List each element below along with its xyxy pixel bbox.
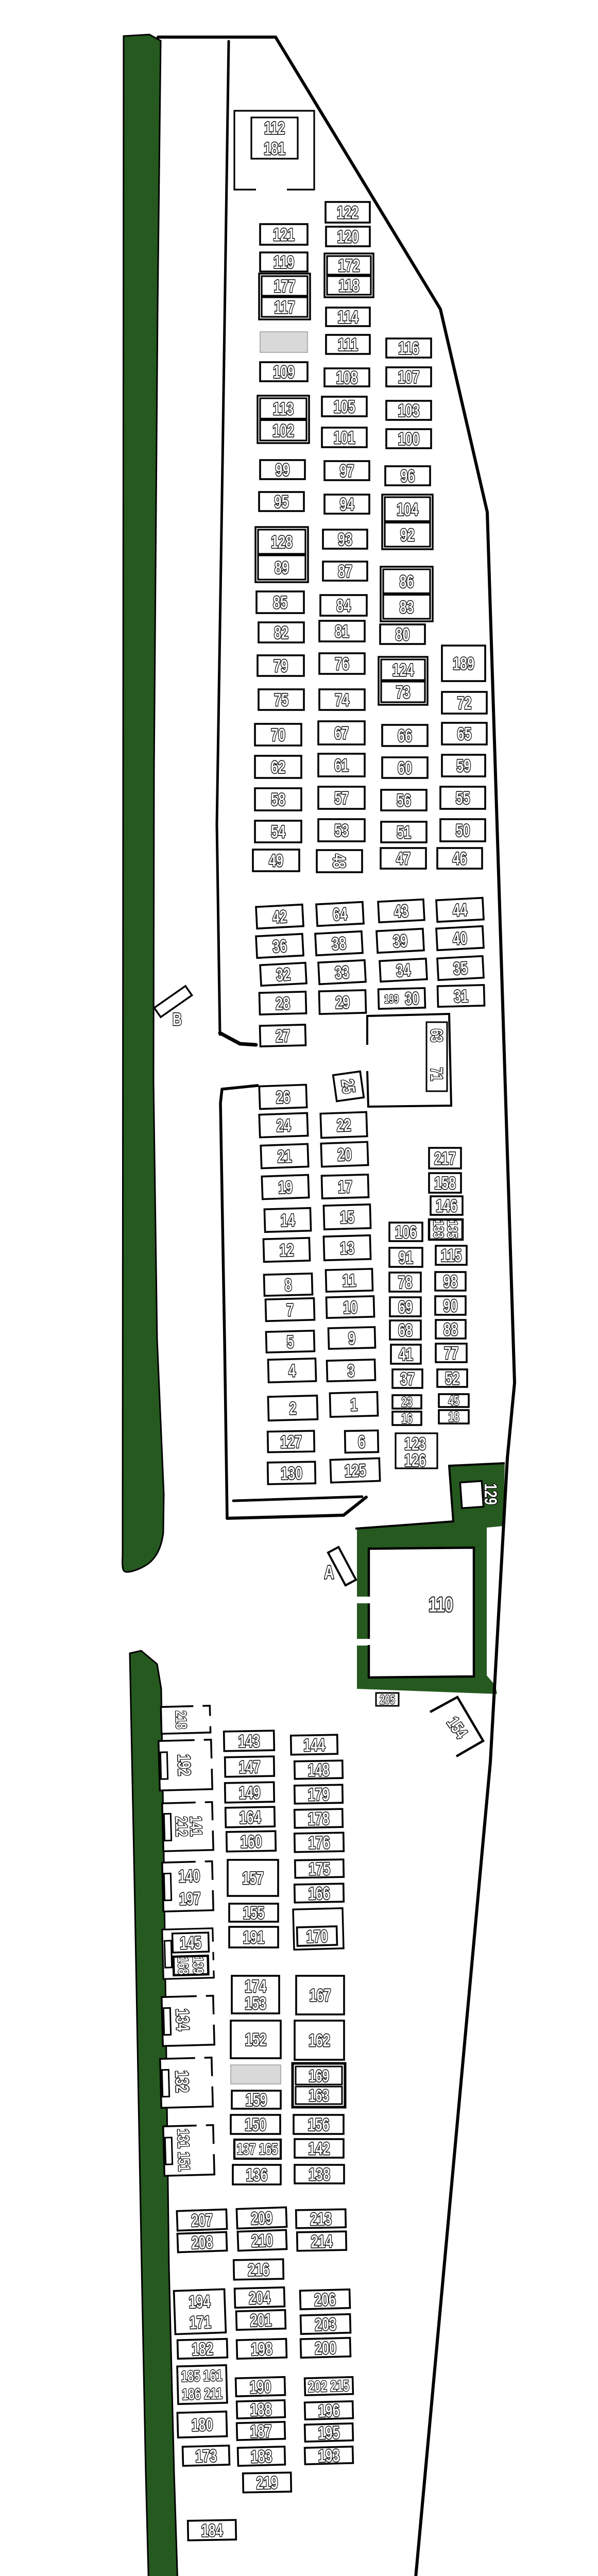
svg-text:110: 110 xyxy=(429,1594,453,1616)
svg-text:147: 147 xyxy=(238,1757,261,1777)
svg-text:13: 13 xyxy=(340,1239,355,1258)
svg-text:15: 15 xyxy=(340,1208,355,1227)
svg-text:26: 26 xyxy=(276,1088,291,1107)
svg-text:50: 50 xyxy=(456,821,470,841)
svg-text:89: 89 xyxy=(275,558,289,578)
svg-text:102: 102 xyxy=(272,421,294,441)
svg-text:38: 38 xyxy=(331,934,347,954)
svg-text:143: 143 xyxy=(238,1732,260,1751)
svg-text:212: 212 xyxy=(172,1816,191,1837)
svg-text:19: 19 xyxy=(278,1178,293,1197)
svg-text:186 211: 186 211 xyxy=(182,2384,223,2403)
svg-text:160: 160 xyxy=(240,1832,262,1852)
svg-text:66: 66 xyxy=(398,726,412,746)
svg-text:56: 56 xyxy=(397,791,411,811)
svg-text:95: 95 xyxy=(275,493,289,512)
svg-text:85: 85 xyxy=(273,594,287,613)
svg-text:134: 134 xyxy=(172,2008,193,2031)
svg-text:157: 157 xyxy=(242,1869,264,1889)
svg-text:30: 30 xyxy=(405,989,420,1009)
svg-text:115: 115 xyxy=(441,1246,462,1266)
svg-text:181: 181 xyxy=(264,140,285,159)
svg-text:128: 128 xyxy=(271,533,293,552)
svg-text:32: 32 xyxy=(276,965,291,985)
svg-text:74: 74 xyxy=(335,691,349,710)
svg-text:52: 52 xyxy=(445,1369,459,1389)
svg-text:2: 2 xyxy=(289,1399,297,1418)
svg-text:152: 152 xyxy=(245,2030,267,2050)
svg-text:45: 45 xyxy=(448,1393,459,1409)
svg-text:99: 99 xyxy=(276,461,290,480)
svg-text:25: 25 xyxy=(337,1078,358,1095)
svg-text:81: 81 xyxy=(335,622,349,642)
svg-text:105: 105 xyxy=(334,398,355,417)
svg-text:34: 34 xyxy=(396,961,411,981)
svg-text:171: 171 xyxy=(189,2313,211,2333)
svg-text:83: 83 xyxy=(400,598,414,617)
svg-text:192: 192 xyxy=(174,1754,194,1776)
svg-text:190: 190 xyxy=(249,2377,271,2397)
svg-text:159: 159 xyxy=(246,2091,267,2110)
svg-text:16: 16 xyxy=(401,1411,412,1426)
svg-text:144: 144 xyxy=(303,1736,326,1755)
svg-text:94: 94 xyxy=(340,495,354,515)
svg-text:24: 24 xyxy=(276,1116,292,1136)
svg-text:189: 189 xyxy=(453,654,474,674)
svg-text:97: 97 xyxy=(340,462,354,481)
svg-text:133: 133 xyxy=(430,1221,446,1239)
svg-text:84: 84 xyxy=(336,597,351,616)
svg-text:33: 33 xyxy=(334,963,350,983)
svg-text:40: 40 xyxy=(452,929,468,949)
svg-text:28: 28 xyxy=(276,994,291,1013)
svg-text:36: 36 xyxy=(272,937,287,957)
svg-text:205: 205 xyxy=(380,1693,395,1707)
svg-text:122: 122 xyxy=(337,204,358,223)
svg-text:109: 109 xyxy=(273,363,295,382)
svg-text:176: 176 xyxy=(308,1833,330,1853)
svg-text:156: 156 xyxy=(308,2115,330,2135)
svg-text:22: 22 xyxy=(336,1116,351,1136)
svg-text:86: 86 xyxy=(400,572,414,592)
svg-text:191: 191 xyxy=(243,1928,265,1948)
svg-text:100: 100 xyxy=(398,430,420,449)
svg-text:175: 175 xyxy=(309,1859,331,1879)
svg-text:29: 29 xyxy=(335,993,350,1012)
svg-text:59: 59 xyxy=(456,757,471,776)
svg-text:185 161: 185 161 xyxy=(181,2366,223,2385)
svg-text:194: 194 xyxy=(189,2292,211,2312)
svg-text:201: 201 xyxy=(250,2311,272,2331)
svg-text:96: 96 xyxy=(401,467,415,486)
svg-text:21: 21 xyxy=(277,1147,292,1166)
svg-text:195: 195 xyxy=(318,2423,340,2443)
svg-text:41: 41 xyxy=(399,1345,413,1365)
svg-text:67: 67 xyxy=(334,724,349,743)
svg-text:146: 146 xyxy=(436,1197,457,1216)
svg-text:112: 112 xyxy=(264,119,285,139)
svg-text:218: 218 xyxy=(172,1710,189,1730)
svg-text:170: 170 xyxy=(306,1927,328,1947)
svg-text:78: 78 xyxy=(398,1273,413,1293)
svg-text:80: 80 xyxy=(396,625,410,645)
svg-text:136: 136 xyxy=(246,2166,268,2185)
svg-text:43: 43 xyxy=(394,902,409,922)
svg-text:180: 180 xyxy=(191,2415,213,2435)
svg-text:164: 164 xyxy=(239,1808,261,1827)
svg-text:168: 168 xyxy=(175,1957,191,1975)
svg-text:31: 31 xyxy=(454,987,469,1006)
svg-text:162: 162 xyxy=(309,2031,330,2051)
svg-text:193: 193 xyxy=(318,2446,340,2466)
svg-text:121: 121 xyxy=(273,226,295,245)
svg-text:1: 1 xyxy=(350,1395,358,1415)
svg-text:93: 93 xyxy=(338,530,352,550)
svg-text:54: 54 xyxy=(271,823,285,842)
svg-text:196: 196 xyxy=(318,2401,340,2421)
svg-text:210: 210 xyxy=(251,2231,273,2251)
svg-text:92: 92 xyxy=(400,526,415,545)
svg-text:27: 27 xyxy=(276,1026,291,1046)
svg-text:68: 68 xyxy=(398,1321,413,1341)
svg-text:174: 174 xyxy=(245,1977,266,1997)
svg-text:187: 187 xyxy=(250,2421,272,2442)
svg-text:3: 3 xyxy=(347,1361,355,1381)
svg-text:131 151: 131 151 xyxy=(174,2128,193,2172)
svg-text:47: 47 xyxy=(396,850,411,869)
svg-text:169: 169 xyxy=(309,2067,329,2085)
svg-text:58: 58 xyxy=(271,790,285,810)
svg-text:107: 107 xyxy=(398,368,420,387)
svg-text:9: 9 xyxy=(348,1329,356,1348)
svg-text:90: 90 xyxy=(443,1297,458,1316)
svg-text:173: 173 xyxy=(195,2446,217,2466)
svg-text:219: 219 xyxy=(256,2473,278,2493)
svg-text:64: 64 xyxy=(332,905,348,925)
svg-text:113: 113 xyxy=(273,399,294,419)
svg-text:17: 17 xyxy=(338,1177,353,1197)
svg-text:7: 7 xyxy=(286,1300,294,1320)
svg-text:48: 48 xyxy=(329,854,349,869)
svg-text:139: 139 xyxy=(190,1956,206,1974)
svg-text:11: 11 xyxy=(342,1271,356,1291)
svg-text:10: 10 xyxy=(343,1298,358,1317)
svg-text:203: 203 xyxy=(315,2315,337,2335)
svg-text:129: 129 xyxy=(481,1483,500,1505)
svg-text:202 215: 202 215 xyxy=(307,2377,349,2395)
svg-text:183: 183 xyxy=(250,2447,272,2467)
svg-text:138: 138 xyxy=(309,2165,330,2185)
svg-text:23: 23 xyxy=(401,1394,412,1410)
svg-text:179: 179 xyxy=(307,1785,330,1805)
svg-text:200: 200 xyxy=(315,2338,337,2359)
svg-text:206: 206 xyxy=(314,2290,336,2310)
svg-text:111: 111 xyxy=(338,335,358,355)
svg-text:53: 53 xyxy=(334,821,349,841)
svg-text:73: 73 xyxy=(396,683,411,703)
svg-text:79: 79 xyxy=(274,657,288,676)
svg-text:217: 217 xyxy=(434,1149,456,1169)
svg-text:76: 76 xyxy=(335,655,349,674)
svg-text:18: 18 xyxy=(448,1409,459,1425)
svg-text:77: 77 xyxy=(444,1344,458,1364)
svg-text:75: 75 xyxy=(274,691,288,710)
svg-text:153: 153 xyxy=(245,1994,266,2014)
svg-text:150: 150 xyxy=(245,2115,266,2135)
svg-text:104: 104 xyxy=(397,500,418,520)
svg-text:158: 158 xyxy=(434,1174,456,1194)
svg-text:61: 61 xyxy=(334,756,349,776)
svg-text:132: 132 xyxy=(172,2070,193,2093)
svg-text:204: 204 xyxy=(249,2288,271,2308)
svg-text:117: 117 xyxy=(274,298,295,318)
svg-text:126: 126 xyxy=(404,1451,426,1471)
svg-text:166: 166 xyxy=(308,1884,330,1904)
svg-text:44: 44 xyxy=(452,901,468,921)
svg-text:167: 167 xyxy=(310,1986,331,2006)
svg-text:71: 71 xyxy=(428,1067,446,1081)
svg-text:B: B xyxy=(173,1010,182,1030)
svg-text:137: 137 xyxy=(236,2140,255,2158)
svg-text:208: 208 xyxy=(191,2233,213,2253)
svg-text:130: 130 xyxy=(281,1464,303,1483)
svg-text:51: 51 xyxy=(397,823,411,843)
svg-text:62: 62 xyxy=(271,758,285,777)
svg-text:108: 108 xyxy=(336,368,358,388)
svg-text:12: 12 xyxy=(279,1241,294,1260)
svg-text:88: 88 xyxy=(443,1320,458,1340)
svg-text:72: 72 xyxy=(457,694,472,714)
svg-text:140: 140 xyxy=(178,1867,200,1887)
svg-text:69: 69 xyxy=(398,1298,413,1317)
svg-text:116: 116 xyxy=(398,339,419,359)
svg-text:14: 14 xyxy=(280,1211,295,1230)
svg-text:216: 216 xyxy=(248,2260,270,2280)
svg-text:163: 163 xyxy=(309,2087,329,2105)
svg-text:188: 188 xyxy=(250,2400,272,2420)
svg-text:165: 165 xyxy=(259,2140,278,2158)
svg-text:197: 197 xyxy=(179,1889,201,1909)
svg-text:8: 8 xyxy=(284,1276,292,1295)
svg-text:60: 60 xyxy=(398,759,412,778)
svg-text:120: 120 xyxy=(337,228,359,247)
svg-text:145: 145 xyxy=(180,1933,202,1953)
svg-text:6: 6 xyxy=(358,1432,366,1452)
svg-text:70: 70 xyxy=(271,726,285,745)
svg-text:118: 118 xyxy=(338,277,360,296)
svg-text:142: 142 xyxy=(309,2140,330,2159)
svg-text:5: 5 xyxy=(286,1332,294,1352)
svg-text:35: 35 xyxy=(453,959,468,979)
svg-text:46: 46 xyxy=(453,850,467,869)
svg-text:82: 82 xyxy=(274,623,288,643)
svg-text:155: 155 xyxy=(243,1904,265,1923)
svg-text:198: 198 xyxy=(251,2340,273,2360)
svg-text:154: 154 xyxy=(443,1714,471,1742)
svg-text:42: 42 xyxy=(272,907,287,927)
svg-text:106: 106 xyxy=(395,1223,417,1243)
svg-text:213: 213 xyxy=(310,2210,332,2229)
svg-text:101: 101 xyxy=(334,429,355,448)
svg-text:103: 103 xyxy=(398,401,420,421)
svg-text:65: 65 xyxy=(457,725,472,744)
svg-text:114: 114 xyxy=(337,308,358,328)
svg-text:57: 57 xyxy=(334,789,349,808)
svg-text:87: 87 xyxy=(338,562,352,582)
svg-text:149: 149 xyxy=(238,1783,261,1803)
svg-text:55: 55 xyxy=(456,789,470,808)
svg-text:98: 98 xyxy=(443,1273,458,1292)
svg-text:127: 127 xyxy=(280,1432,302,1452)
svg-text:182: 182 xyxy=(192,2340,214,2360)
svg-text:119: 119 xyxy=(274,253,295,273)
svg-text:124: 124 xyxy=(392,661,414,681)
svg-text:207: 207 xyxy=(191,2211,213,2231)
svg-text:49: 49 xyxy=(269,852,283,871)
svg-text:178: 178 xyxy=(307,1809,330,1829)
svg-text:4: 4 xyxy=(288,1361,296,1381)
svg-text:63: 63 xyxy=(428,1029,446,1042)
svg-text:91: 91 xyxy=(399,1248,413,1268)
svg-text:172: 172 xyxy=(338,257,360,276)
svg-text:148: 148 xyxy=(307,1760,330,1780)
svg-text:20: 20 xyxy=(337,1145,352,1165)
svg-text:184: 184 xyxy=(201,2521,223,2540)
svg-text:199: 199 xyxy=(384,993,399,1006)
svg-text:37: 37 xyxy=(400,1370,415,1389)
svg-text:177: 177 xyxy=(274,277,296,297)
svg-text:125: 125 xyxy=(344,1461,366,1481)
svg-text:A: A xyxy=(324,1562,334,1583)
svg-text:39: 39 xyxy=(392,931,408,952)
svg-text:209: 209 xyxy=(250,2209,272,2229)
svg-text:214: 214 xyxy=(311,2232,333,2251)
